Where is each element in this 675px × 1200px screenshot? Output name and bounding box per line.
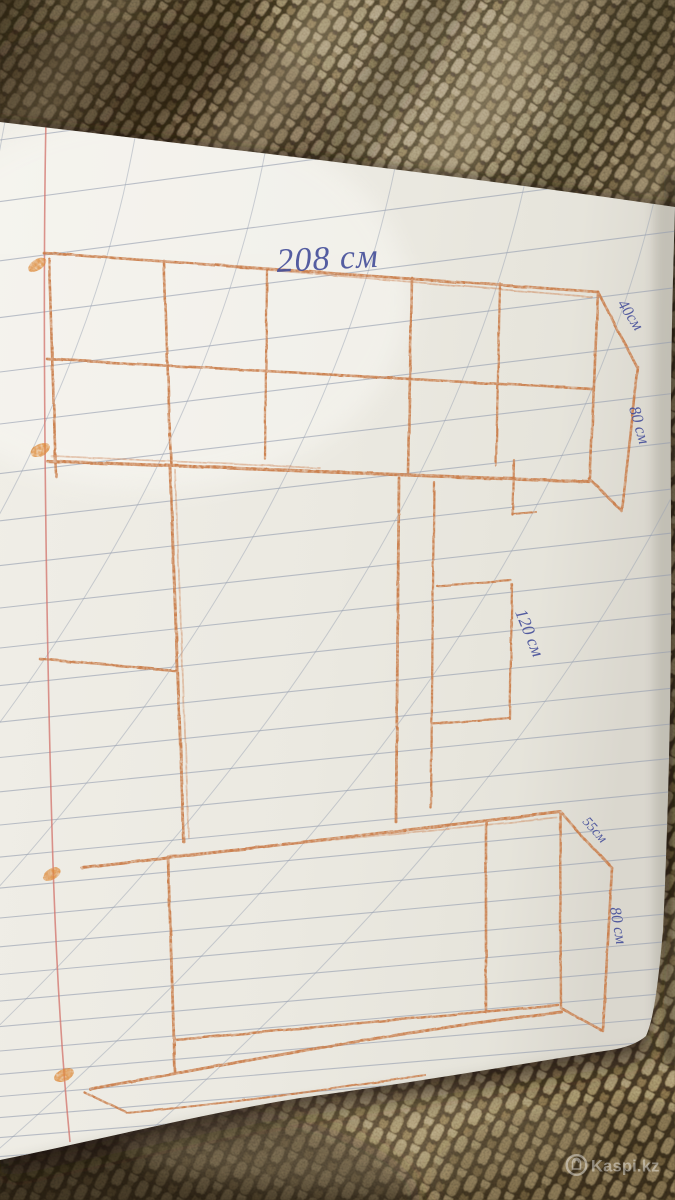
svg-text:208 см: 208 см	[275, 238, 379, 280]
svg-text:Kaspi.kz: Kaspi.kz	[591, 1158, 660, 1176]
